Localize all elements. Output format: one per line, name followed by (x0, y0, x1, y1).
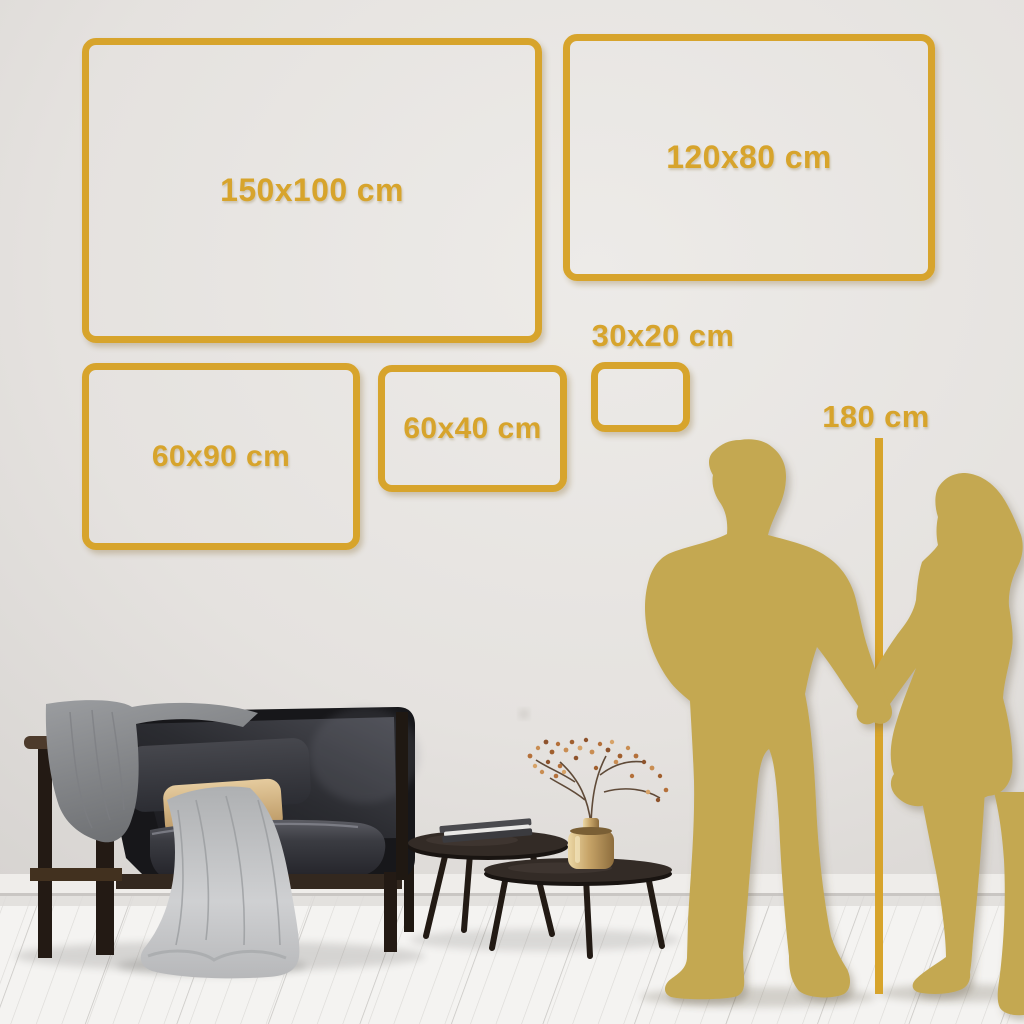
wall-smudge (520, 710, 528, 718)
size-label-120x80: 120x80 cm (666, 139, 832, 176)
height-marker-label: 180 cm (796, 399, 956, 435)
size-frame-150x100: 150x100 cm (82, 38, 542, 343)
size-frame-120x80: 120x80 cm (563, 34, 935, 281)
size-label-60x90: 60x90 cm (152, 440, 290, 474)
size-frame-60x40: 60x40 cm (378, 365, 567, 492)
vase-body (568, 830, 614, 869)
size-frame-30x20 (591, 362, 690, 432)
size-label-150x100: 150x100 cm (220, 172, 404, 209)
size-label-60x40: 60x40 cm (403, 412, 541, 446)
size-label-30x20: 30x20 cm (583, 318, 743, 354)
size-guide-scene: 150x100 cm 120x80 cm 30x20 cm 60x40 cm 6… (0, 0, 1024, 1024)
size-frame-60x90: 60x90 cm (82, 363, 360, 550)
